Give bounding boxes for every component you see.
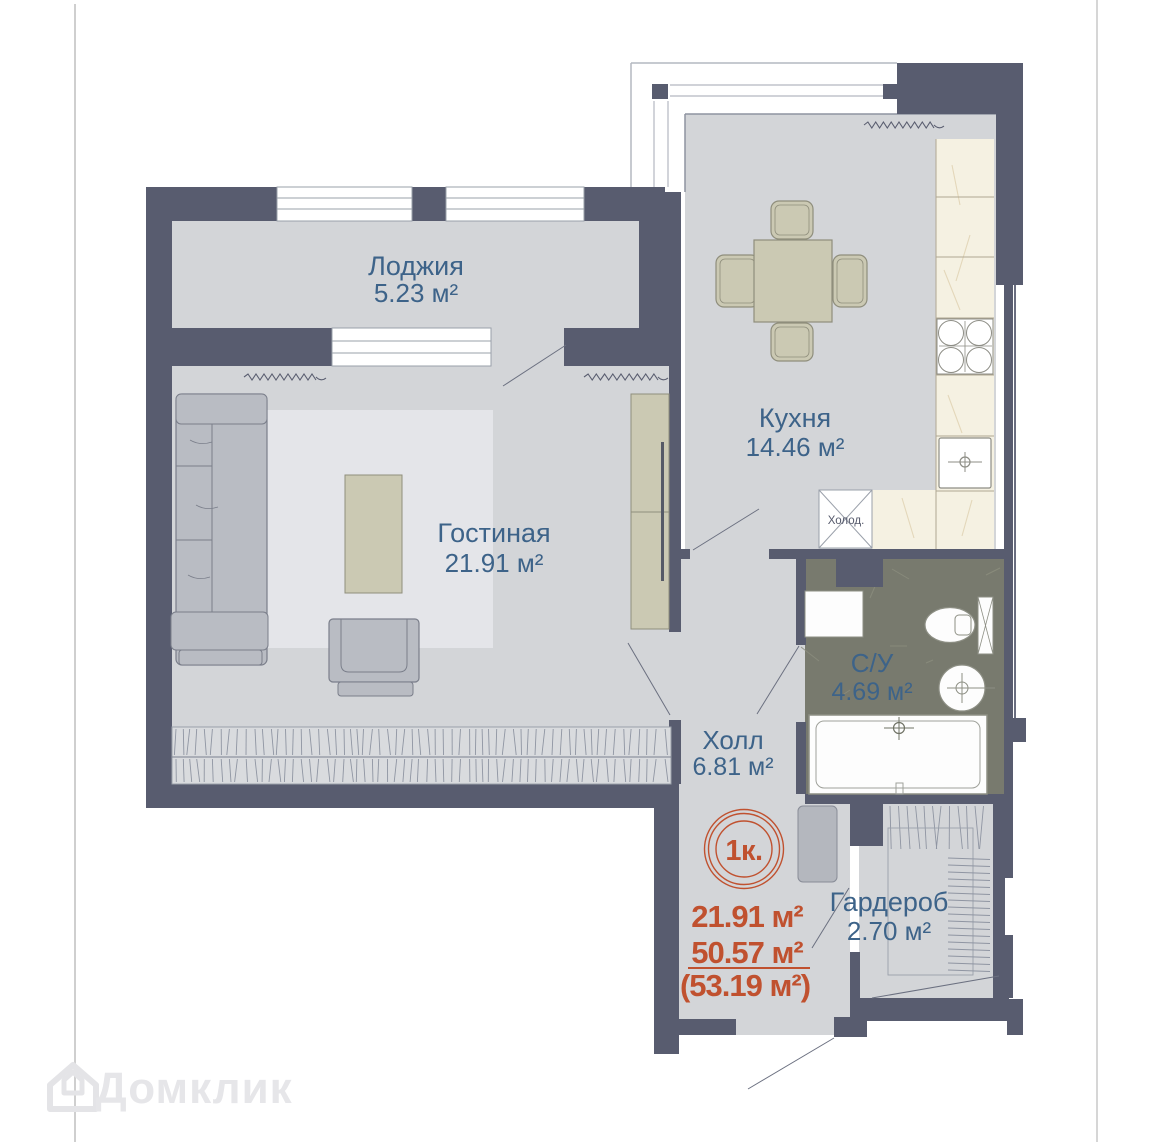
svg-text:2.70 м²: 2.70 м² xyxy=(847,916,932,946)
svg-text:Холод.: Холод. xyxy=(828,515,865,527)
svg-text:(53.19 м²): (53.19 м²) xyxy=(680,968,810,1003)
svg-text:5.23 м²: 5.23 м² xyxy=(374,278,459,308)
svg-text:6.81 м²: 6.81 м² xyxy=(692,753,773,781)
svg-text:Гостиная: Гостиная xyxy=(437,518,550,548)
svg-text:С/У: С/У xyxy=(851,648,894,678)
svg-text:Кухня: Кухня xyxy=(759,403,831,433)
svg-text:21.91 м²: 21.91 м² xyxy=(691,899,803,934)
svg-text:4.69 м²: 4.69 м² xyxy=(831,678,912,706)
svg-text:Холл: Холл xyxy=(702,725,763,755)
svg-text:14.46 м²: 14.46 м² xyxy=(746,432,845,462)
svg-text:1к.: 1к. xyxy=(725,835,762,867)
svg-text:50.57 м²: 50.57 м² xyxy=(691,935,803,970)
svg-text:Домклик: Домклик xyxy=(95,1064,292,1113)
svg-text:Гардероб: Гардероб xyxy=(830,887,949,917)
svg-text:21.91 м²: 21.91 м² xyxy=(445,548,544,578)
svg-text:Лоджия: Лоджия xyxy=(368,251,464,281)
